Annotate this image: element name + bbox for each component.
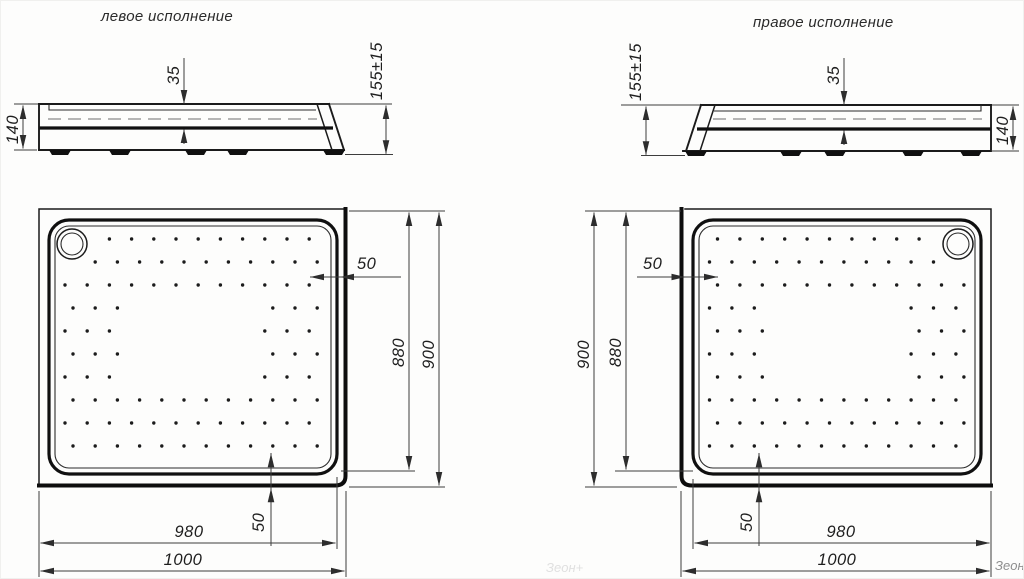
right-version-side-view: 155±15 35 140 [621, 43, 1019, 156]
tray-profile-outline [621, 105, 1019, 151]
dim-total-height-right: 155±15 [627, 43, 685, 156]
rim-outer-edge [49, 220, 337, 474]
rim-ledge-line [49, 105, 316, 111]
dim-pattern-offset-bottom-left-view: 50 [250, 453, 271, 546]
watermark-right: Зеон+ [995, 558, 1024, 573]
dim-label-pattern-offset-top-left-view: 50 [357, 255, 377, 273]
dim-label-rim-x-right-view: 980 [826, 523, 855, 541]
dim-pattern-offset-top-left-view: 50 [310, 255, 401, 277]
dim-basin-depth-right: 35 [825, 58, 844, 145]
dim-label-overall-y-right-view: 900 [575, 340, 593, 369]
dim-label-total-height-right: 155±15 [627, 43, 645, 101]
dim-label-overall-y-left-view: 900 [420, 340, 438, 369]
dim-pattern-offset-bottom-right-view: 50 [738, 453, 759, 546]
dim-label-overall-x-right-view: 1000 [818, 551, 857, 569]
dim-body-height-right: 140 [991, 107, 1019, 152]
dim-label-pattern-offset-bottom-right-view: 50 [738, 512, 756, 532]
shower-tray-drawing: левое исполнение правое исполнение 140 [0, 0, 1024, 579]
drain-hole [943, 229, 973, 259]
right-version-plan-view: 50 900 880 50 980 1000 [575, 209, 991, 577]
drain-hole [57, 229, 87, 259]
title-right-version: правое исполнение [753, 14, 894, 31]
dim-body-height-left: 140 [4, 106, 37, 151]
drawing-canvas: левое исполнение правое исполнение 140 [1, 1, 1024, 579]
anti-slip-dots [63, 237, 319, 447]
dim-label-total-height-left: 155±15 [368, 42, 386, 100]
dim-label-rim-y-left-view: 880 [390, 338, 408, 367]
anti-slip-dots [708, 237, 966, 447]
tray-profile-outline [14, 104, 392, 150]
rim-ledge-line [714, 106, 981, 112]
dim-pattern-offset-top-right-view: 50 [637, 255, 718, 277]
dim-label-pattern-offset-top-right-view: 50 [643, 255, 663, 273]
dim-label-basin-depth-right: 35 [825, 65, 843, 85]
dim-label-basin-depth-left: 35 [165, 65, 183, 85]
dim-label-pattern-offset-bottom-left-view: 50 [250, 512, 268, 532]
dim-label-body-height-left: 140 [4, 115, 22, 144]
dim-label-rim-x-left-view: 980 [174, 523, 203, 541]
dim-label-overall-x-left-view: 1000 [164, 551, 203, 569]
dim-label-rim-y-right-view: 880 [607, 338, 625, 367]
dim-total-height-left: 155±15 [345, 42, 393, 155]
watermark-center: Зеон+ [546, 560, 584, 575]
dim-overall-y-right-view: 900 [575, 211, 681, 487]
dim-basin-depth-left: 35 [165, 58, 184, 144]
title-left-version: левое исполнение [100, 8, 233, 25]
dim-label-body-height-right: 140 [994, 116, 1012, 145]
left-version-plan-view: 50 880 900 50 980 1000 [39, 209, 445, 577]
rim-outer-edge [693, 220, 981, 474]
left-version-side-view: 140 35 155±15 [4, 42, 393, 155]
